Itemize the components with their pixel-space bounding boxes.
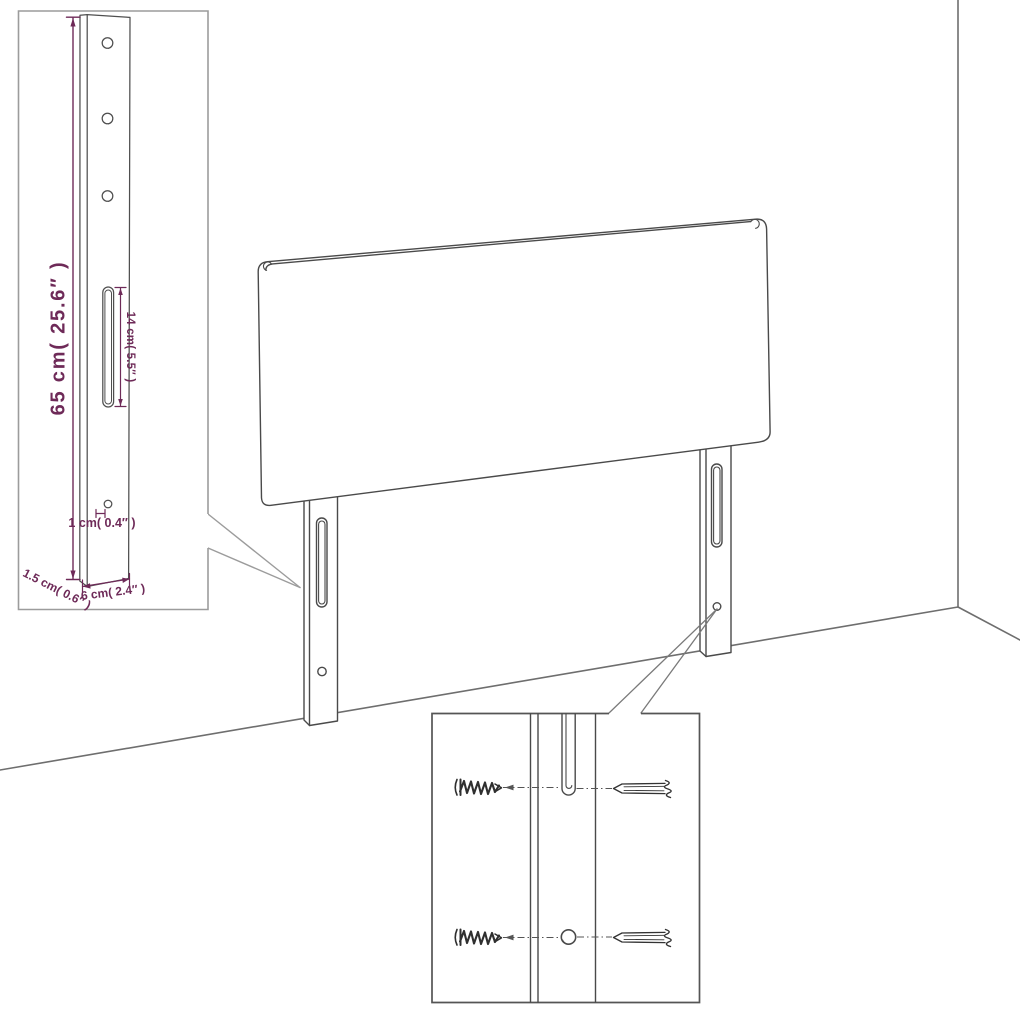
headboard-dimension-diagram: 65 cm( 25.6″ ) 14 cm( 5.5″ ) 1 cm( 0.4″ … xyxy=(0,0,1020,1020)
post-height-dimension-label: 65 cm( 25.6″ ) xyxy=(48,261,71,416)
hardware-detail-inset xyxy=(432,714,700,1003)
headboard-panel xyxy=(258,219,770,505)
headboard-drawing xyxy=(258,219,770,725)
hole-diameter-dimension-label: 1 cm( 0.4″ ) xyxy=(68,516,135,530)
headboard-left-leg xyxy=(304,492,338,726)
post-side-view xyxy=(80,15,130,587)
slot-length-dimension-label: 14 cm( 5.5″ ) xyxy=(124,312,136,383)
post-detail-callout-wedge xyxy=(208,514,300,588)
headboard-right-leg xyxy=(700,438,731,657)
diagram-lineart xyxy=(0,0,1020,1020)
floor-line-right xyxy=(958,607,1020,640)
hardware-callout-wedge xyxy=(609,609,717,713)
